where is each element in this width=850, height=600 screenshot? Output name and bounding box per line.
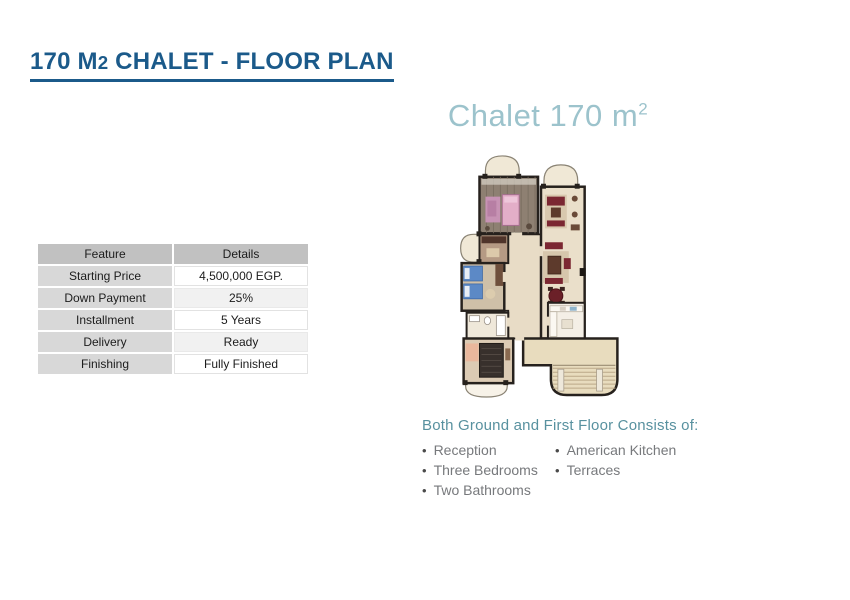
header-cell-feature: Feature [38,244,172,264]
header-cell-details: Details [174,244,308,264]
bullet-icon: • [422,463,427,478]
table-row: Starting Price 4,500,000 EGP. [38,266,308,286]
feature-cell: Down Payment [38,288,172,308]
bullet-icon: • [422,483,427,498]
features-list-right: •American Kitchen •Terraces [555,440,676,480]
feature-cell: Starting Price [38,266,172,286]
details-cell: 25% [174,288,308,308]
details-cell: Ready [174,332,308,352]
spec-table-header-row: Feature Details [38,244,308,264]
feature-cell: Installment [38,310,172,330]
page-title-sub2: 2 [98,52,109,73]
list-item-label: Terraces [567,462,621,478]
details-cell: 4,500,000 EGP. [174,266,308,286]
list-item: •Terraces [555,460,676,480]
list-item: •Three Bedrooms [422,460,538,480]
table-row: Down Payment 25% [38,288,308,308]
feature-cell: Delivery [38,332,172,352]
list-item: •Two Bathrooms [422,480,538,500]
list-item-label: Two Bathrooms [434,482,531,498]
list-item: •Reception [422,440,538,460]
list-item-label: Three Bedrooms [434,462,538,478]
details-cell: Fully Finished [174,354,308,374]
plan-heading: Chalet 170 m2 [408,98,688,134]
bullet-icon: • [555,463,560,478]
page-title-part1: 170 M [30,48,98,75]
plan-heading-text: Chalet 170 m [448,98,638,133]
bullet-icon: • [555,443,560,458]
page-title-part2: CHALET - FLOOR PLAN [108,48,393,75]
list-item-label: Reception [434,442,497,458]
features-list-left: •Reception •Three Bedrooms •Two Bathroom… [422,440,538,500]
features-heading: Both Ground and First Floor Consists of: [422,417,698,434]
table-row: Delivery Ready [38,332,308,352]
slide-page: 170 M2 CHALET - FLOOR PLAN Chalet 170 m2… [0,0,850,600]
plan-heading-sup: 2 [638,100,648,119]
list-item: •American Kitchen [555,440,676,460]
spec-table: Feature Details Starting Price 4,500,000… [36,242,310,376]
details-cell: 5 Years [174,310,308,330]
bullet-icon: • [422,443,427,458]
page-title: 170 M2 CHALET - FLOOR PLAN [30,48,394,82]
list-item-label: American Kitchen [567,442,677,458]
floor-plan-image [441,151,641,401]
table-row: Finishing Fully Finished [38,354,308,374]
table-row: Installment 5 Years [38,310,308,330]
feature-cell: Finishing [38,354,172,374]
